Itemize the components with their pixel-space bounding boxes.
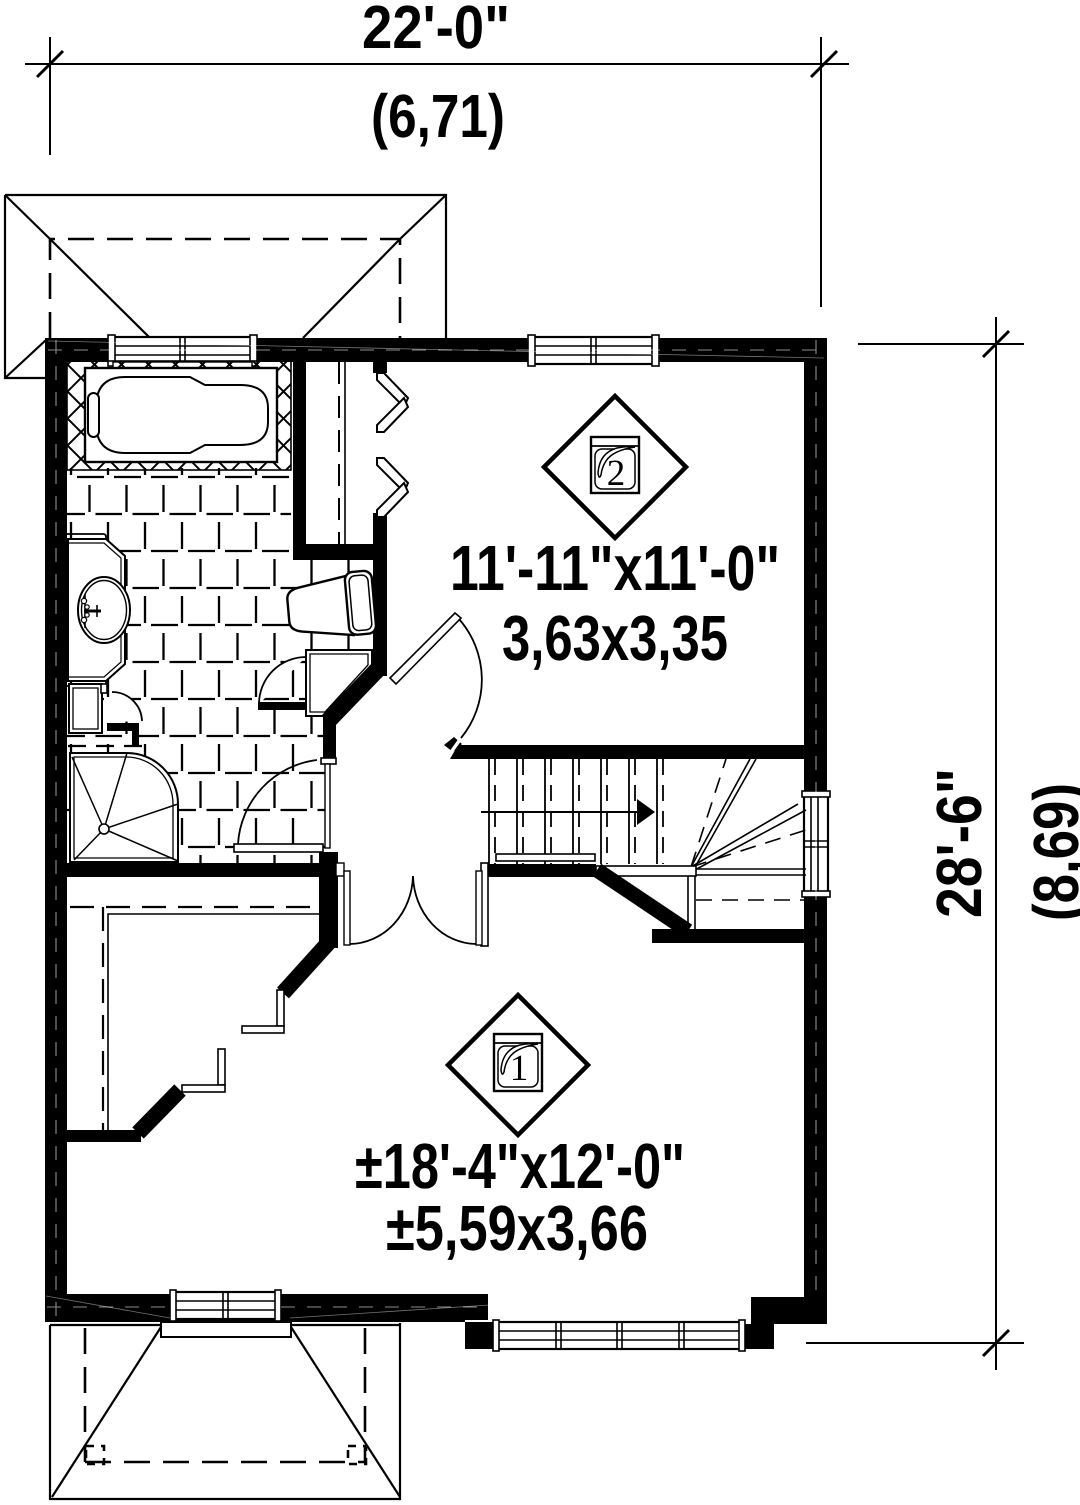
svg-text:11'-11"x11'-0": 11'-11"x11'-0" xyxy=(450,532,780,604)
svg-text:28'-6": 28'-6" xyxy=(923,768,995,918)
svg-text:2: 2 xyxy=(607,453,626,494)
svg-text:(8,69): (8,69) xyxy=(1020,783,1080,921)
svg-text:1: 1 xyxy=(510,1048,529,1089)
svg-text:±5,59x3,66: ±5,59x3,66 xyxy=(386,1192,648,1264)
svg-text:3,63x3,35: 3,63x3,35 xyxy=(502,602,728,674)
svg-text:(6,71): (6,71) xyxy=(371,82,505,150)
svg-text:22'-0": 22'-0" xyxy=(362,0,510,61)
